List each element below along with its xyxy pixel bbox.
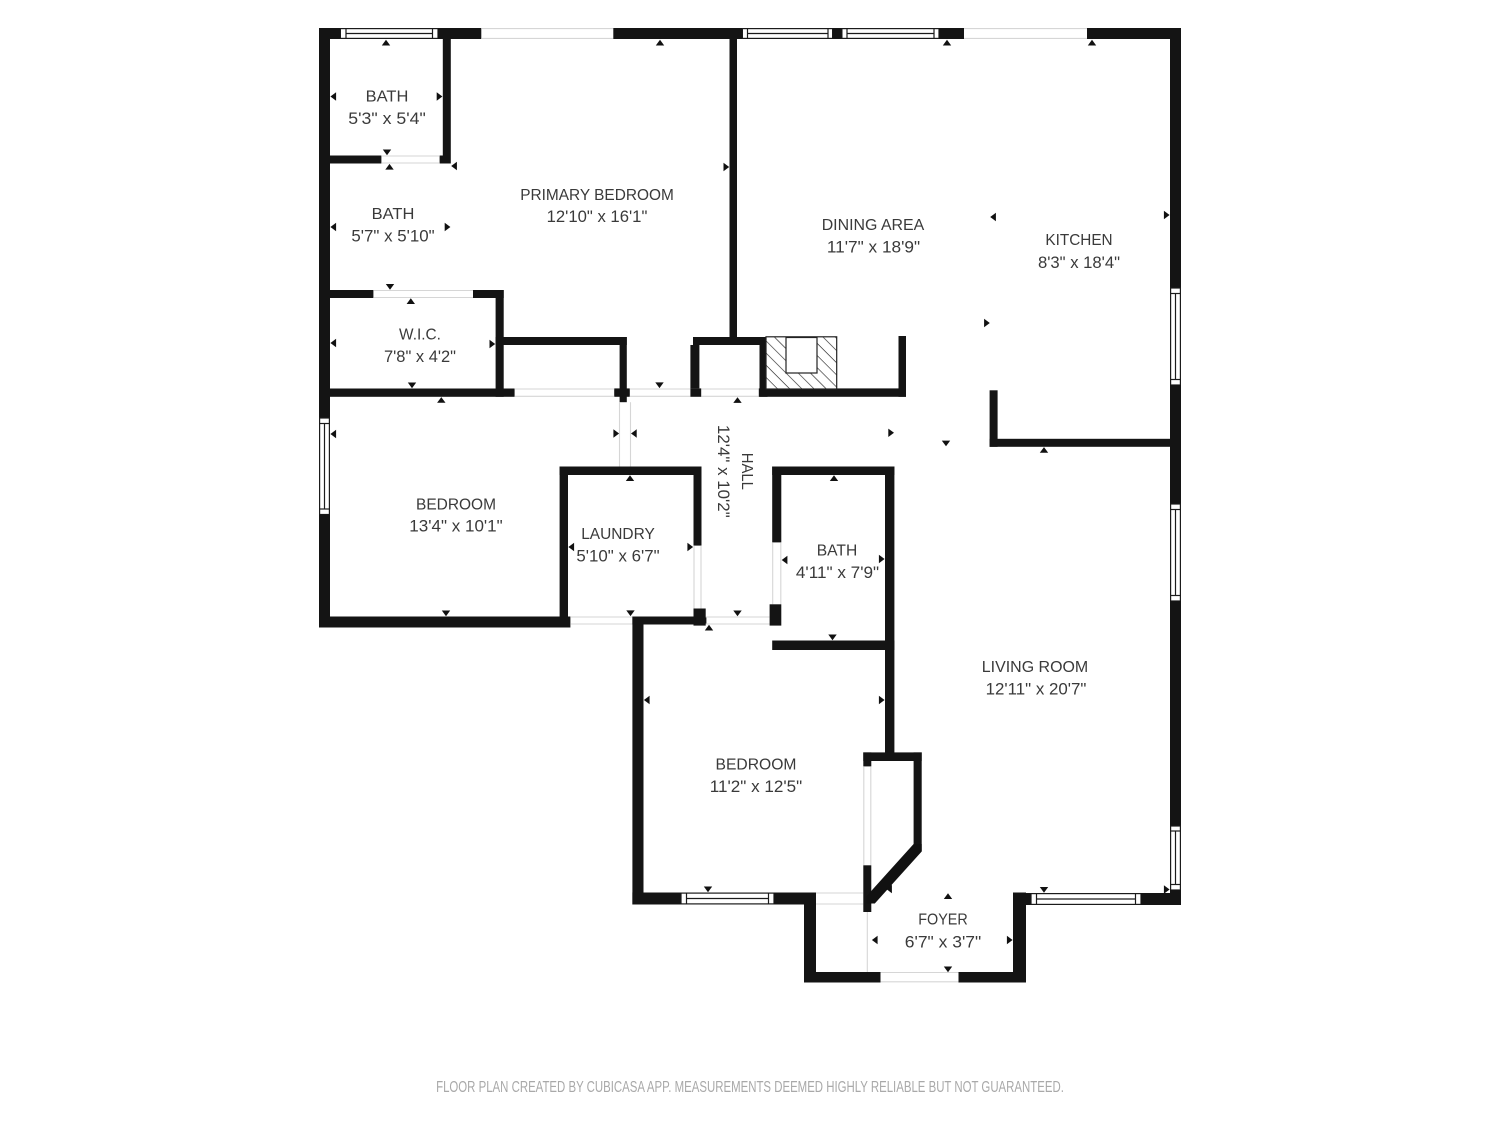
svg-text:BATH: BATH (372, 206, 415, 223)
svg-text:5'7" x 5'10": 5'7" x 5'10" (351, 227, 434, 246)
svg-text:12'11" x 20'7": 12'11" x 20'7" (986, 679, 1087, 698)
svg-text:KITCHEN: KITCHEN (1045, 232, 1112, 249)
svg-text:7'8" x 4'2": 7'8" x 4'2" (384, 347, 456, 366)
svg-text:LAUNDRY: LAUNDRY (581, 526, 655, 543)
svg-text:DINING AREA: DINING AREA (822, 217, 925, 234)
svg-text:W.I.C.: W.I.C. (399, 327, 441, 344)
svg-text:12'4" x 10'2": 12'4" x 10'2" (714, 425, 733, 518)
svg-text:BEDROOM: BEDROOM (716, 757, 797, 774)
svg-text:4'11" x 7'9": 4'11" x 7'9" (796, 563, 879, 582)
svg-text:6'7" x 3'7": 6'7" x 3'7" (905, 933, 982, 952)
svg-text:11'2" x 12'5": 11'2" x 12'5" (710, 777, 803, 796)
svg-text:8'3" x 18'4": 8'3" x 18'4" (1038, 253, 1120, 272)
svg-text:PRIMARY BEDROOM: PRIMARY BEDROOM (520, 187, 674, 204)
svg-text:FOYER: FOYER (918, 912, 968, 929)
svg-text:5'10" x 6'7": 5'10" x 6'7" (576, 547, 659, 566)
svg-text:BATH: BATH (817, 543, 858, 560)
svg-text:BATH: BATH (366, 89, 409, 106)
svg-text:11'7" x 18'9": 11'7" x 18'9" (827, 238, 920, 257)
svg-text:5'3" x 5'4": 5'3" x 5'4" (348, 109, 426, 128)
svg-text:13'4" x 10'1": 13'4" x 10'1" (409, 517, 502, 536)
svg-text:BEDROOM: BEDROOM (416, 497, 496, 514)
svg-text:12'10" x 16'1": 12'10" x 16'1" (547, 207, 648, 226)
svg-text:FLOOR PLAN CREATED BY CUBICASA: FLOOR PLAN CREATED BY CUBICASA APP. MEAS… (436, 1079, 1064, 1096)
svg-text:LIVING ROOM: LIVING ROOM (982, 659, 1088, 676)
svg-text:HALL: HALL (738, 453, 755, 490)
